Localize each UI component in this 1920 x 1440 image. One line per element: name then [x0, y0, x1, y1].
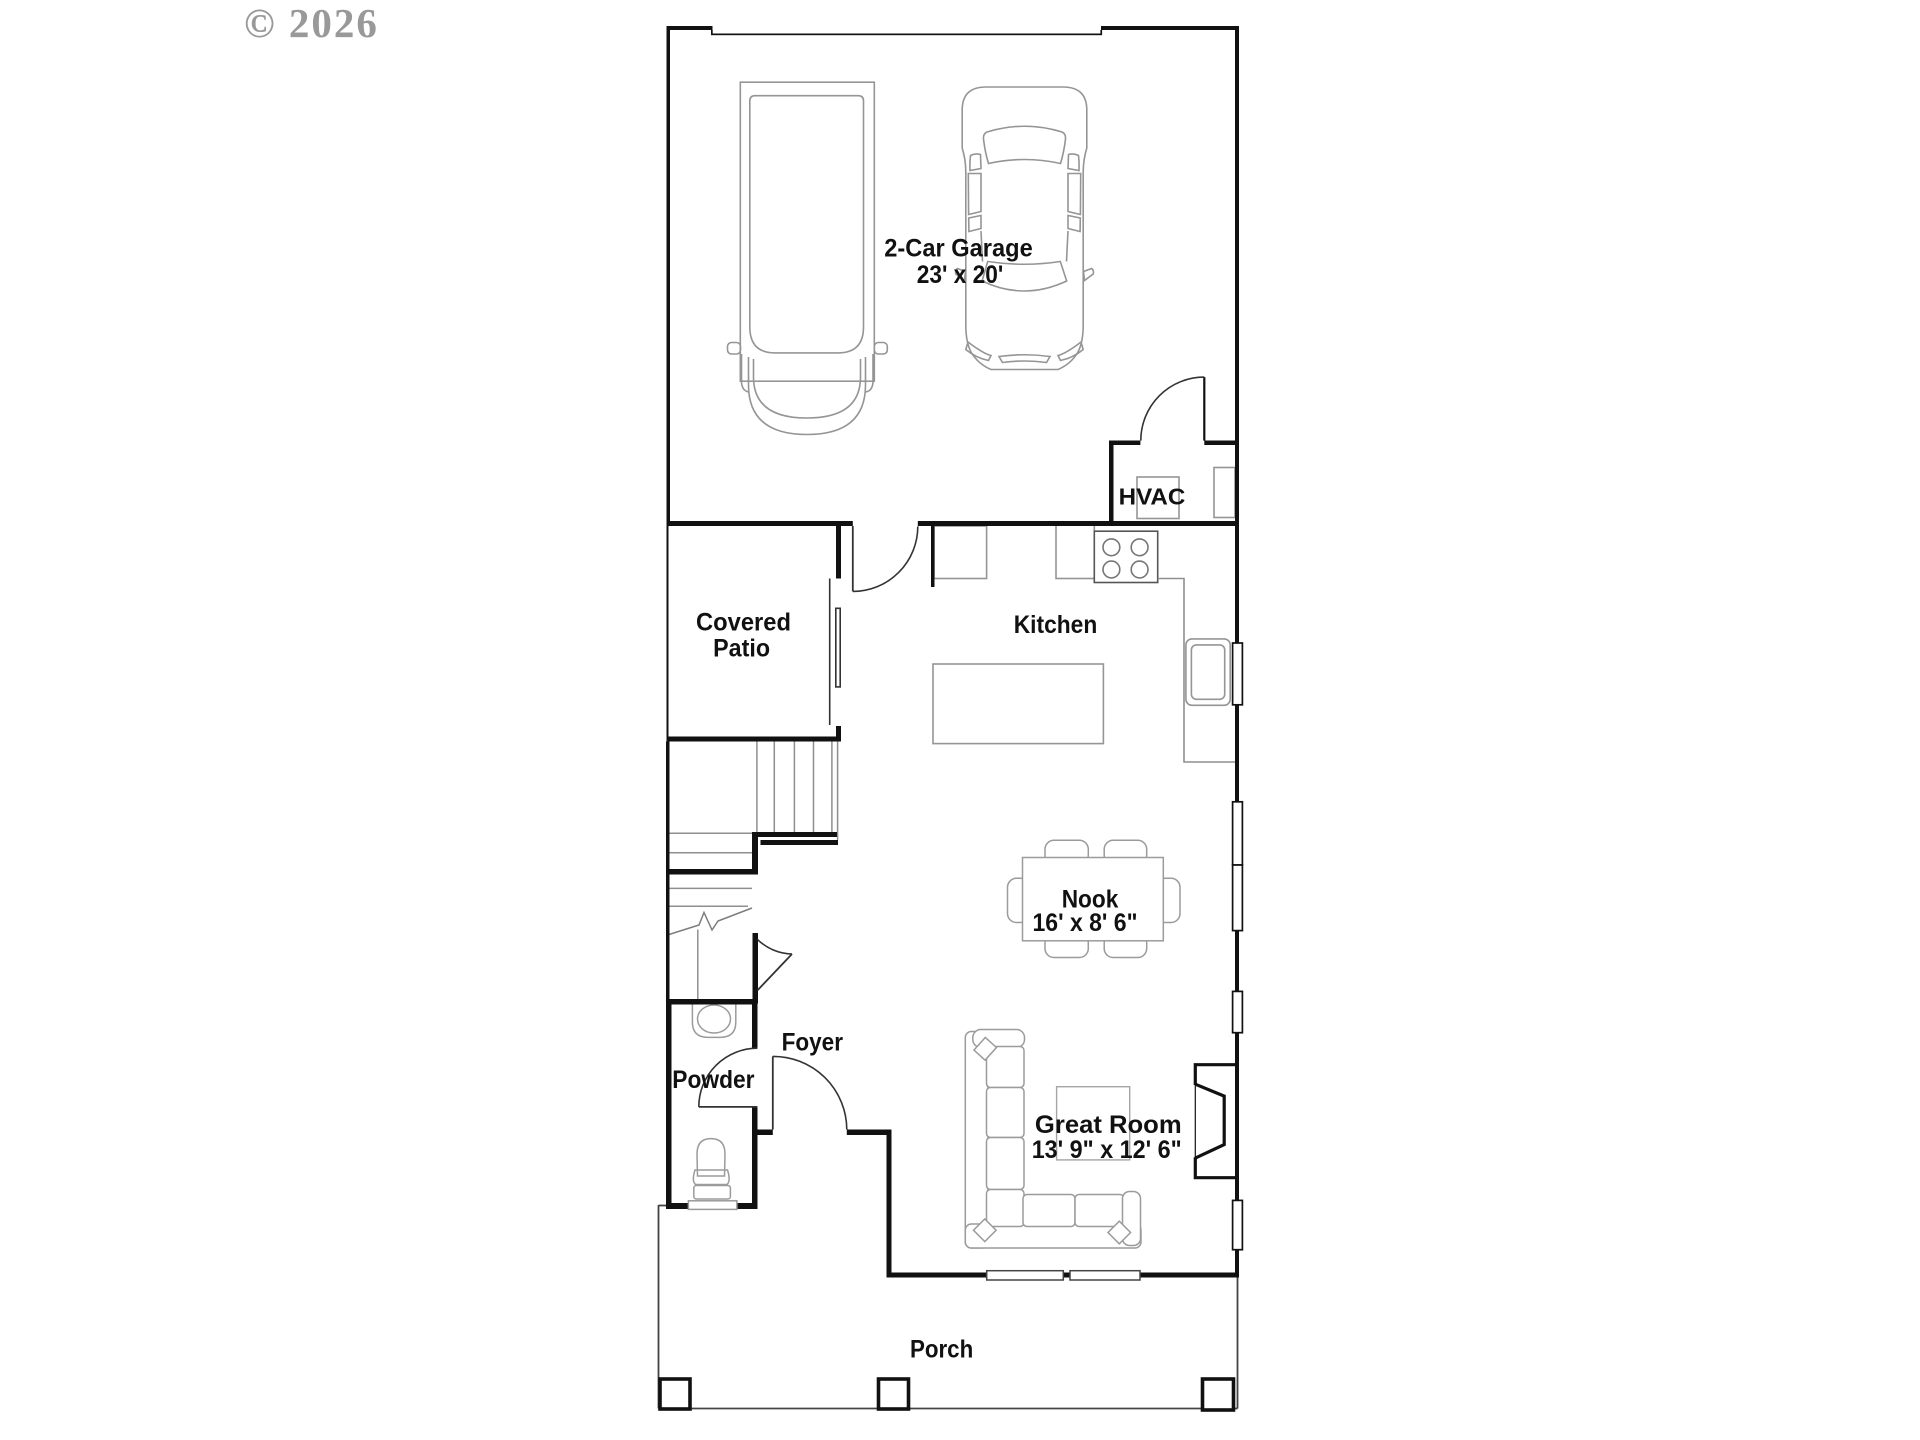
- svg-text:Covered: Covered: [696, 609, 791, 637]
- svg-text:HVAC: HVAC: [1119, 484, 1186, 510]
- svg-text:23' x 20': 23' x 20': [917, 261, 1004, 289]
- svg-text:Great Room: Great Room: [1035, 1111, 1182, 1139]
- svg-text:Porch: Porch: [910, 1336, 973, 1364]
- svg-text:Kitchen: Kitchen: [1014, 611, 1098, 639]
- svg-text:2-Car Garage: 2-Car Garage: [884, 235, 1033, 263]
- svg-text:Patio: Patio: [713, 635, 770, 663]
- svg-text:© 2026: © 2026: [244, 0, 379, 46]
- svg-text:13' 9" x 12' 6": 13' 9" x 12' 6": [1032, 1136, 1182, 1164]
- svg-text:16' x 8' 6": 16' x 8' 6": [1033, 909, 1138, 937]
- svg-text:Powder: Powder: [672, 1066, 754, 1094]
- svg-text:Foyer: Foyer: [782, 1029, 844, 1057]
